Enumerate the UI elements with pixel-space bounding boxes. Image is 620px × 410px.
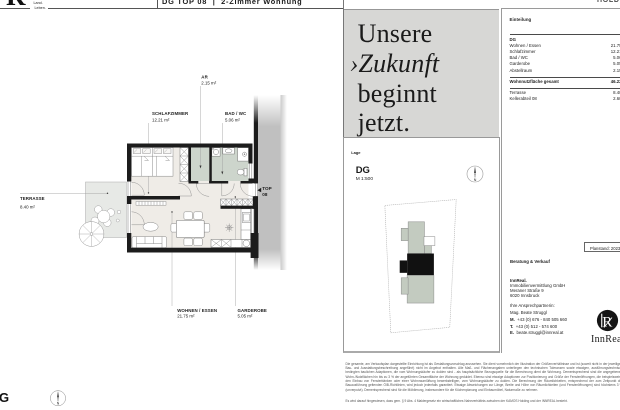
svg-text:12.21 m²: 12.21 m² — [152, 117, 170, 122]
svg-text:GARDEROBE: GARDEROBE — [238, 308, 267, 313]
svg-text:SCHLAFZIMMER: SCHLAFZIMMER — [152, 111, 189, 116]
svg-text:5.06 m²: 5.06 m² — [225, 117, 240, 122]
svg-text:TERRASSE: TERRASSE — [20, 196, 45, 201]
svg-text:WOHNEN / ESSEN: WOHNEN / ESSEN — [177, 308, 217, 313]
svg-text:AR: AR — [201, 75, 208, 80]
svg-text:R: R — [602, 315, 612, 331]
svg-text:08: 08 — [262, 192, 268, 197]
svg-text:TOP: TOP — [262, 186, 271, 191]
svg-text:BAD / WC: BAD / WC — [225, 111, 247, 116]
svg-text:21.75 m²: 21.75 m² — [177, 314, 195, 319]
svg-text:5.05 m²: 5.05 m² — [238, 314, 253, 319]
svg-text:8.40 m²: 8.40 m² — [20, 205, 35, 210]
svg-text:2.15 m²: 2.15 m² — [201, 81, 216, 86]
